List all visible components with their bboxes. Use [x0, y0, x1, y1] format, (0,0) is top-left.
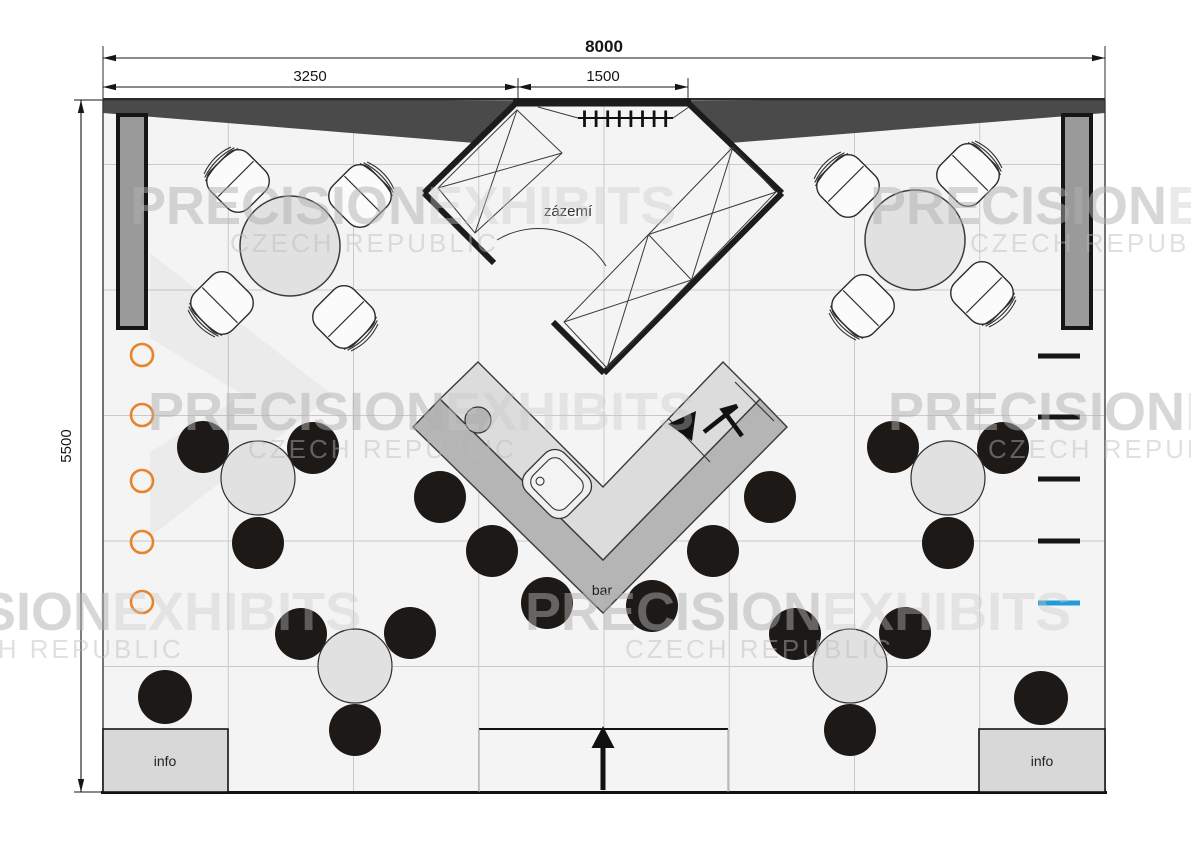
stool	[232, 517, 284, 569]
info-counter-left: info	[103, 729, 228, 792]
stool	[384, 607, 436, 659]
watermark-subtitle: CZECH REPUBLIC	[248, 434, 517, 464]
bar-stool	[466, 525, 518, 577]
watermark-subtitle: CZECH REPUBLIC	[970, 228, 1191, 258]
dimension-left-span: 3250	[103, 68, 518, 90]
watermark-text: PRECISIONEXHIBITS	[0, 582, 361, 642]
stool	[922, 517, 974, 569]
stool	[824, 704, 876, 756]
watermark-subtitle: CZECH REPUBLIC	[230, 228, 499, 258]
cocktail-table	[911, 441, 985, 515]
watermark-text: PRECISIONEXHIBITS	[525, 582, 1071, 642]
bar-stool	[687, 525, 739, 577]
bar-stool	[744, 471, 796, 523]
info-right-label: info	[1031, 753, 1054, 769]
info-left-label: info	[154, 753, 177, 769]
svg-text:5500: 5500	[58, 429, 75, 462]
floorplan-canvas: zázemí bar info info	[0, 0, 1191, 842]
svg-text:1500: 1500	[586, 68, 619, 85]
svg-text:8000: 8000	[585, 37, 623, 56]
watermark-text: PRECISIONEXHIBITS	[870, 176, 1191, 236]
dimension-total-width: 8000	[103, 37, 1105, 61]
info-counter-right: info	[979, 729, 1105, 792]
svg-text:3250: 3250	[293, 68, 326, 85]
bar-stool	[414, 471, 466, 523]
watermark-subtitle: CZECH REPUBLIC	[988, 434, 1191, 464]
stool	[138, 670, 192, 724]
stool	[329, 704, 381, 756]
stool	[1014, 671, 1068, 725]
watermark-subtitle: CZECH REPUBLIC	[0, 634, 184, 664]
dimension-center-span: 1500	[518, 68, 688, 90]
watermark-subtitle: CZECH REPUBLIC	[625, 634, 894, 664]
dimension-total-depth: 5500	[58, 100, 84, 792]
watermark-text: PRECISIONEXHIBITS	[130, 176, 676, 236]
watermark-text: PRECISIONEXHIBITS	[148, 382, 694, 442]
backroom-top-wall	[513, 99, 691, 107]
watermark-text: PRECISIONEXHIBITS	[888, 382, 1191, 442]
